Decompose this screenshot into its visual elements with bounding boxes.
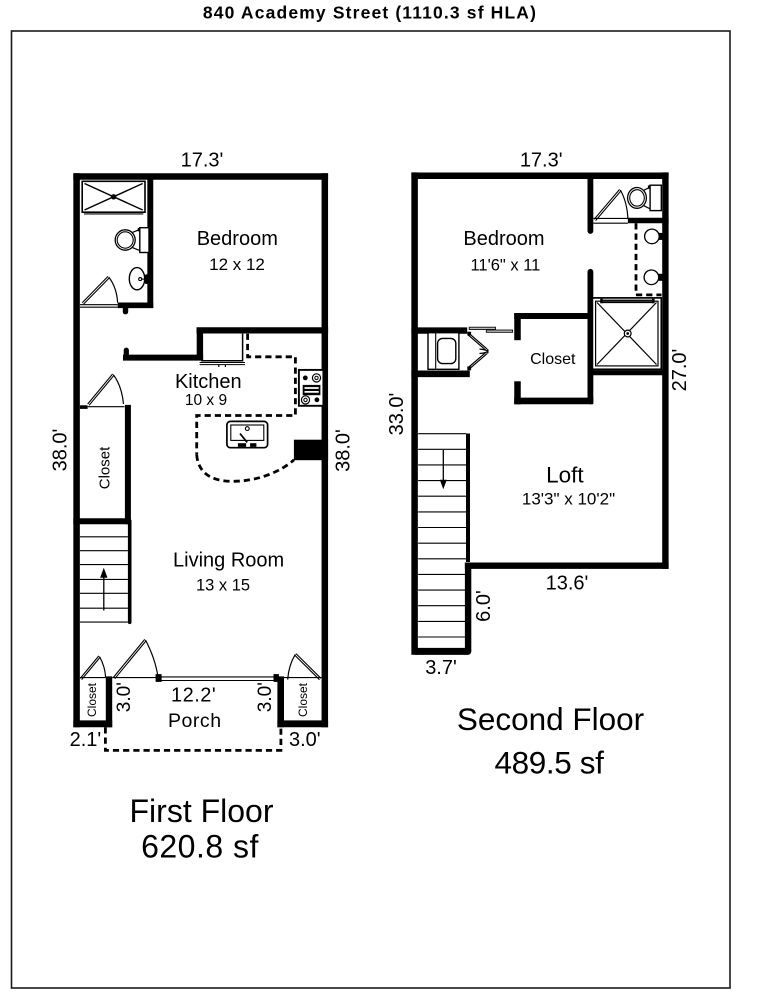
svg-text:Loft: Loft	[546, 463, 584, 488]
svg-text:12 x 12: 12 x 12	[209, 255, 265, 274]
svg-text:Bedroom: Bedroom	[197, 228, 278, 250]
svg-text:Kitchen: Kitchen	[175, 371, 242, 393]
svg-text:11'6" x 11: 11'6" x 11	[470, 257, 540, 275]
svg-text:3.7': 3.7'	[425, 657, 457, 679]
svg-text:Closet: Closet	[296, 682, 310, 717]
svg-text:3.0': 3.0'	[289, 729, 321, 751]
svg-text:Second Floor: Second Floor	[457, 701, 644, 737]
svg-text:Closet: Closet	[97, 446, 114, 489]
svg-text:33.0': 33.0'	[386, 393, 408, 436]
svg-text:Closet: Closet	[85, 682, 99, 717]
svg-text:First Floor: First Floor	[130, 793, 274, 829]
svg-text:Closet: Closet	[530, 351, 576, 368]
svg-text:Porch: Porch	[168, 710, 222, 732]
svg-text:840 Academy Street (1110.3 sf: 840 Academy Street (1110.3 sf HLA)	[203, 3, 537, 23]
svg-text:Living Room: Living Room	[173, 549, 284, 571]
svg-text:3.0': 3.0'	[255, 682, 276, 712]
svg-text:12.2': 12.2'	[171, 684, 216, 706]
svg-text:13.6': 13.6'	[546, 573, 589, 595]
svg-text:2.1': 2.1'	[70, 729, 102, 751]
svg-text:13 x 15: 13 x 15	[196, 576, 250, 594]
svg-text:Bedroom: Bedroom	[463, 228, 544, 250]
svg-text:27.0': 27.0'	[669, 349, 691, 392]
svg-text:10 x 9: 10 x 9	[185, 392, 227, 409]
svg-text:17.3': 17.3'	[520, 150, 563, 172]
svg-text:17.3': 17.3'	[181, 150, 224, 172]
svg-text:38.0': 38.0'	[49, 429, 71, 472]
svg-text:6.0': 6.0'	[473, 590, 495, 622]
svg-text:13'3" x 10'2": 13'3" x 10'2"	[522, 489, 615, 508]
svg-text:3.0': 3.0'	[114, 682, 135, 712]
svg-text:620.8 sf: 620.8 sf	[141, 829, 259, 865]
svg-text:489.5 sf: 489.5 sf	[495, 745, 605, 781]
svg-text:38.0': 38.0'	[332, 429, 354, 472]
